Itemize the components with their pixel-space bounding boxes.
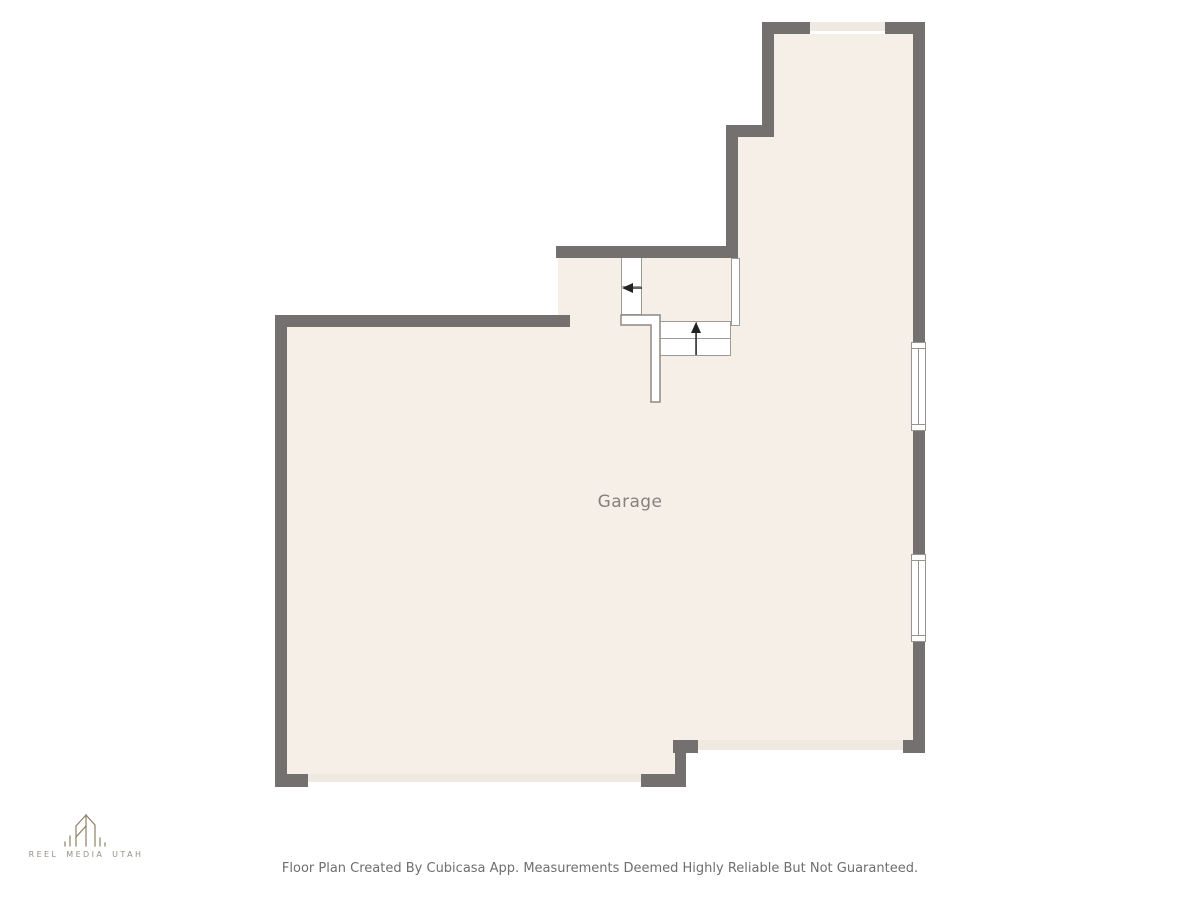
- floor-area-stairwell: [558, 258, 738, 327]
- floor-plan: Garage: [0, 0, 1200, 900]
- wall-segment-right-lower: [913, 642, 925, 753]
- window-frame-line: [912, 348, 925, 349]
- stairs-upper-flight: [621, 258, 642, 315]
- logo-text: REEL MEDIA UTAH: [26, 850, 146, 859]
- wall-segment-stairwell-top: [556, 246, 738, 258]
- floor-area-upper-right: [738, 137, 913, 327]
- garage-door-opening-bottom-left: [308, 774, 641, 782]
- window-frame-line: [912, 635, 925, 636]
- wall-segment-top-left: [275, 315, 570, 327]
- wall-segment-bottom-right-a: [673, 740, 698, 753]
- wall-segment-notch-vertical: [726, 125, 738, 258]
- logo: REEL MEDIA UTAH: [26, 812, 146, 859]
- window-symbol-lower: [911, 554, 926, 642]
- wall-segment-right-between-windows: [913, 431, 925, 555]
- stair-doorway-strip: [731, 258, 740, 326]
- stair-tread-line: [660, 338, 730, 339]
- floor-area-lower-left: [287, 740, 676, 775]
- floor-area-main: [287, 325, 913, 741]
- floor-area-upper-right-top: [774, 33, 913, 140]
- wall-segment-left: [275, 315, 287, 787]
- garage-door-opening-bottom-right: [698, 740, 903, 750]
- window-glass-line: [918, 561, 919, 635]
- disclaimer-text: Floor Plan Created By Cubicasa App. Meas…: [0, 861, 1200, 876]
- logo-house-icon: [61, 812, 111, 848]
- wall-segment-right-upper: [913, 22, 925, 342]
- garage-door-opening-top: [810, 22, 885, 34]
- window-frame-line: [912, 424, 925, 425]
- window-glass-line: [918, 349, 919, 424]
- window-frame-line: [912, 560, 925, 561]
- wall-segment-top-b: [885, 22, 925, 34]
- wall-segment-upper-left-vertical: [762, 22, 774, 125]
- room-label: Garage: [540, 492, 720, 512]
- stairs-lower-flight: [659, 321, 731, 356]
- window-symbol-upper: [911, 342, 926, 431]
- stair-tread-line: [622, 286, 641, 287]
- wall-segment-bottom-left: [275, 774, 308, 787]
